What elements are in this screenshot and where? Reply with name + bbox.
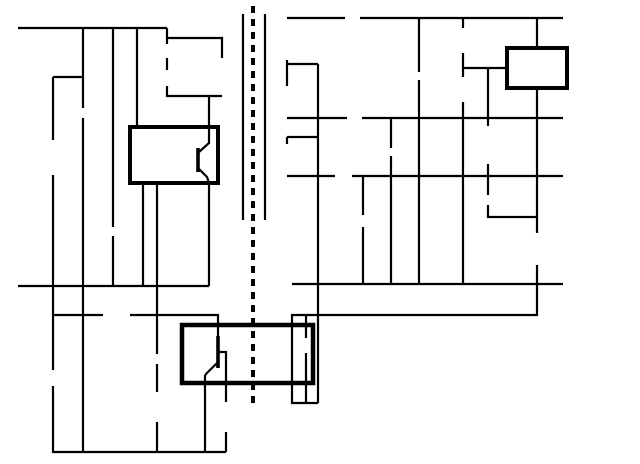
lm385-box xyxy=(507,48,567,88)
4n27-box xyxy=(182,325,313,383)
wire xyxy=(205,362,218,375)
schematic-canvas xyxy=(0,0,640,464)
wire xyxy=(488,205,537,217)
wire xyxy=(199,127,209,152)
circuit-diagram xyxy=(0,0,640,464)
wire xyxy=(167,86,222,96)
wire xyxy=(167,38,222,58)
wire xyxy=(53,386,226,452)
wire xyxy=(292,265,537,403)
